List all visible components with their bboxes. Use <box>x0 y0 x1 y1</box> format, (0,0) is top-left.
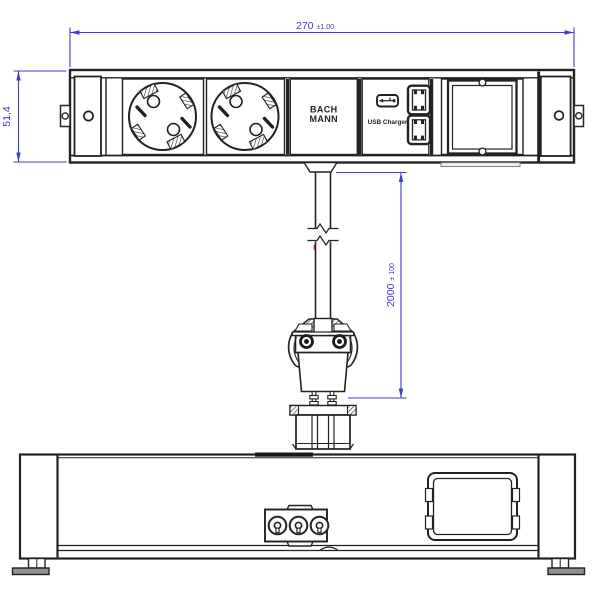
gst18-3pole-connector-icon <box>265 506 328 547</box>
power-strip-technical-drawing: 270±1.00 51,4 <box>0 0 600 600</box>
technical-drawing-page: 270±1.00 51,4 <box>0 0 600 600</box>
screw-hole-icon <box>479 148 486 155</box>
height-dimension-label: 51,4 <box>1 106 13 127</box>
height-dimension: 51,4 <box>1 71 67 162</box>
cable-break-icon <box>308 224 339 245</box>
screw-hole-icon <box>479 79 486 86</box>
module-cutout-icon <box>426 473 520 540</box>
gst18-plug-icon <box>289 319 358 450</box>
usb-a-port-icon <box>408 86 430 115</box>
schuko-socket-icon <box>129 83 196 150</box>
levelling-foot-right-icon <box>548 559 585 575</box>
plug-pins <box>310 392 336 406</box>
usb-charger-label: USB Charger <box>368 119 408 126</box>
end-cap-right <box>537 72 570 162</box>
screw-hole-icon <box>84 111 93 120</box>
socket-module-1 <box>123 79 204 155</box>
mounting-bracket-right-icon <box>574 106 584 127</box>
plug-screw-icon <box>301 336 313 348</box>
levelling-foot-left-icon <box>13 559 50 575</box>
front-view: BACH MANN USB Charger <box>61 70 584 167</box>
plug-screw-icon <box>334 336 346 348</box>
schuko-socket-icon <box>212 83 279 150</box>
usb-a-port-icon <box>408 116 430 145</box>
brand-module: BACH MANN <box>290 79 357 155</box>
rear-view <box>13 453 585 575</box>
power-cable <box>304 163 339 320</box>
width-dimension: 270±1.00 <box>70 20 574 67</box>
cable-exit-slot <box>255 453 313 457</box>
custom-module-slot <box>442 79 524 155</box>
socket-module-2 <box>207 79 285 155</box>
usb-plug-icon <box>377 95 398 107</box>
cable-length-label: 2000± 100 <box>385 263 397 307</box>
usb-charger-module: USB Charger <box>362 79 430 155</box>
brand-logo-line2: MANN <box>309 114 338 124</box>
mounting-bracket-left-icon <box>61 106 71 127</box>
end-cap-left <box>75 77 107 157</box>
screw-hole-icon <box>555 111 564 120</box>
width-dimension-label: 270±1.00 <box>296 20 334 32</box>
